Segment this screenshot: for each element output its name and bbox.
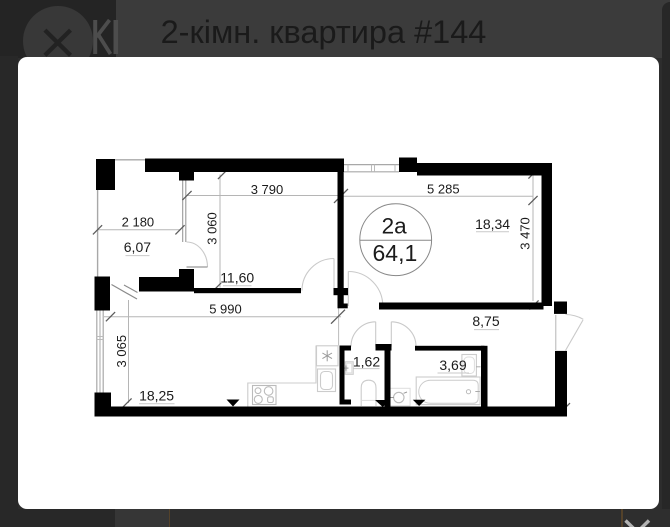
svg-text:18,25: 18,25 [139, 387, 174, 403]
svg-text:1,62: 1,62 [353, 353, 380, 369]
svg-text:18,34: 18,34 [475, 216, 510, 232]
svg-text:8,75: 8,75 [472, 313, 499, 329]
svg-text:3 790: 3 790 [251, 182, 284, 197]
svg-text:3,69: 3,69 [439, 357, 466, 373]
svg-text:3 065: 3 065 [114, 335, 129, 368]
svg-text:2 180: 2 180 [122, 214, 155, 229]
svg-text:3 060: 3 060 [204, 212, 219, 245]
svg-text:64,1: 64,1 [373, 240, 418, 266]
svg-text:5 285: 5 285 [427, 182, 460, 197]
svg-text:5 990: 5 990 [209, 301, 242, 316]
svg-text:6,07: 6,07 [124, 239, 151, 255]
svg-text:3 470: 3 470 [517, 217, 532, 250]
svg-text:2a: 2a [382, 214, 408, 239]
svg-text:11,60: 11,60 [220, 270, 254, 286]
